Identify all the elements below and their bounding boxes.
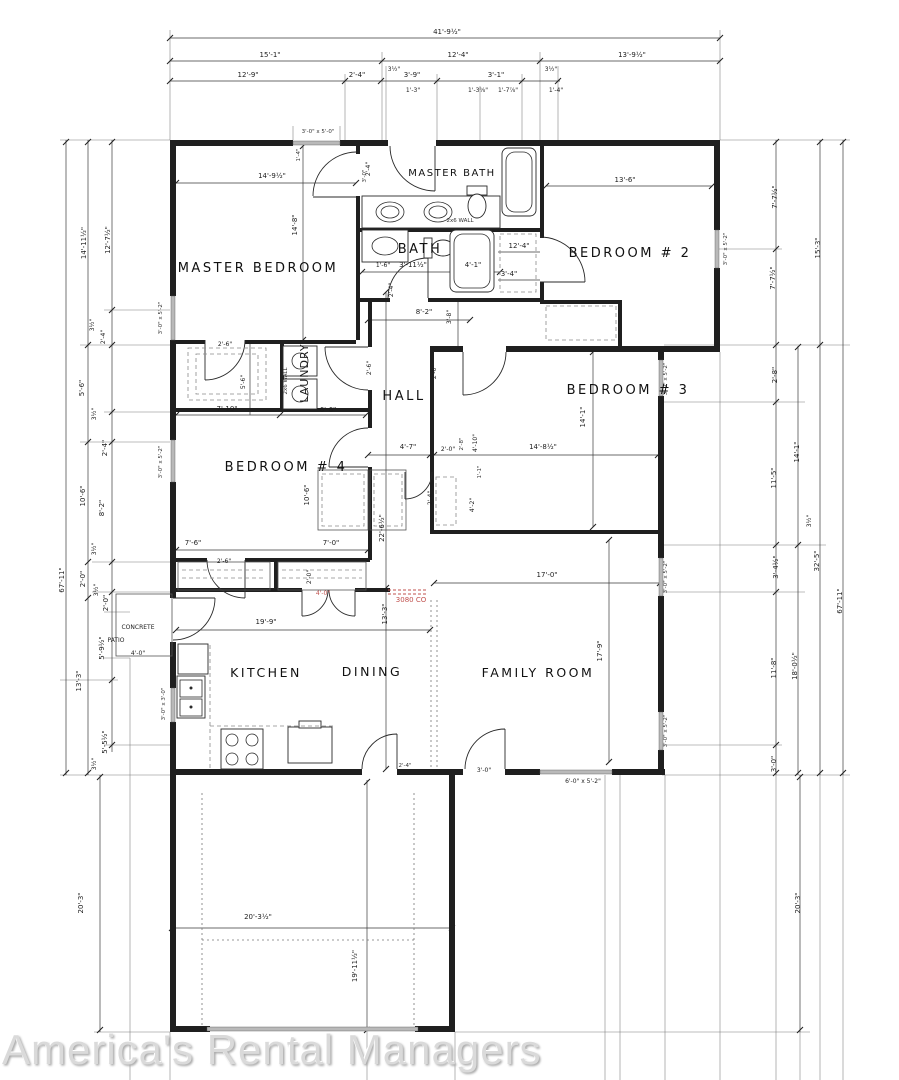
dim-label: 4'-1": [465, 261, 482, 269]
dim-label: 2'-8": [771, 367, 779, 384]
room-label-master-bath: MASTER BATH: [408, 168, 495, 179]
dim-label: 3'-0": [362, 169, 368, 182]
dim-label: 67'-11": [58, 567, 66, 592]
room-label-laundry: LAUNDRY: [298, 343, 311, 402]
dim-label: 14'-8": [291, 214, 299, 235]
window-size-label: 3'-0" x 5'-2": [663, 715, 669, 748]
closet-shelving: [178, 234, 616, 768]
patio-label: CONCRETE: [121, 624, 154, 631]
dim-label: 2'-4": [398, 763, 411, 769]
patio-label: PATIO: [107, 637, 124, 644]
dim-label: 22'-6½": [378, 514, 386, 542]
dim-label: 67'-11": [836, 588, 844, 613]
dim-label: 12'-4": [447, 51, 468, 59]
dim-label: 3½": [806, 515, 813, 528]
dim-label: 3½": [388, 66, 401, 73]
dim-label: 19'-11½": [351, 950, 359, 982]
dim-label: 12'-4": [508, 242, 529, 250]
dimension-text-top: 41'-9½" 15'-1" 12'-4" 13'-9½" 12'-9" 2'-…: [237, 28, 645, 135]
dim-label: 13'-3": [381, 603, 389, 624]
dim-label: 14'-1": [793, 441, 801, 462]
watermark: America's Rental Managers: [2, 1026, 899, 1074]
dim-label: 20'-3": [794, 892, 802, 913]
dim-label: 1'-1": [477, 465, 483, 478]
dim-label: 18'-0½": [791, 652, 799, 680]
dim-label: 2'-8": [459, 437, 465, 450]
dim-label: 5'-5½": [101, 730, 109, 753]
dim-label: 13'-3": [75, 670, 83, 691]
dim-label: 10'-6": [79, 485, 87, 506]
red-annotations: 4'-0" 3080 CO: [316, 590, 428, 604]
dim-label: 20'-3½": [244, 913, 272, 921]
dim-label: 5'-6": [78, 380, 86, 397]
dim-label: 14'-11½": [80, 227, 88, 259]
dim-label: 2'-6": [218, 341, 232, 348]
dim-label: 1'-3⅝": [468, 87, 488, 94]
dim-label: 7'-6": [185, 539, 202, 547]
window-size-label: 3'-0" x 5'-2": [723, 233, 729, 266]
dim-label: 1'-4": [296, 148, 302, 161]
room-label-dining: DINING: [342, 664, 402, 679]
dim-label: 41'-9½": [433, 28, 461, 36]
patio-dim: 4'-0": [131, 650, 145, 657]
room-label-bedroom-3: BEDROOM # 3: [567, 383, 690, 398]
dim-label: 14'-1": [579, 406, 587, 427]
dim-label: 2'-4": [100, 330, 107, 344]
dim-label: 13'-6": [614, 176, 635, 184]
wall-type-label: 2x6 WALL: [446, 218, 474, 224]
room-label-bedroom-4: BEDROOM # 4: [225, 460, 348, 475]
dim-label: 20'-3": [77, 892, 85, 913]
dim-label: 10'-6": [303, 484, 311, 505]
red-door-size: 4'-0": [316, 590, 330, 597]
dim-label: 2'-6": [366, 361, 373, 375]
window-size-label: 6'-0" x 5'-2": [565, 778, 601, 785]
window-size-label: 3'-0" x 5'-0": [302, 129, 335, 135]
dim-label: 1'-7⅞": [498, 87, 518, 94]
dim-label: 2'-4": [388, 283, 395, 297]
dim-label: 3'-0": [770, 756, 778, 773]
window-size-label: 3'-0" x 5'-2": [663, 561, 669, 594]
dim-label: 3'-4½": [772, 555, 780, 578]
dim-label: 3½": [89, 319, 96, 332]
dim-label: 2'-0": [102, 595, 110, 612]
dim-label: 19'-9": [255, 618, 276, 626]
dim-label: 2'-4": [101, 440, 109, 457]
dim-label: 3'-11½": [399, 261, 427, 269]
fixtures: [116, 148, 536, 769]
dim-label: 3½": [93, 584, 100, 597]
dimension-text-right: 7'-7½" 15'-3" 7'-7½" 2'-8" 14'-1" 11'-5"…: [663, 185, 844, 913]
dim-label: 15'-1": [259, 51, 280, 59]
floor-plan-drawing: 4'-0" 3080 CO 41'-9½" 15'-1" 12'-4" 13'-…: [0, 0, 899, 1080]
room-label-bedroom-2: BEDROOM # 2: [569, 246, 692, 261]
dim-label: 3½": [91, 408, 98, 421]
dim-label: 3'-1": [488, 71, 505, 79]
dim-label: 3'-0": [477, 767, 491, 774]
dim-label: 8'-2": [416, 308, 433, 316]
dim-label: 7'-7½": [771, 185, 779, 208]
dimension-text-left: 67'-11" 14'-11½" 12'-7½" 3½" 2'-4" 5'-6"…: [58, 226, 167, 913]
dim-label: 5'-6": [240, 375, 247, 389]
dim-label: 1'-4": [549, 87, 563, 94]
dim-label: 7'-0": [323, 539, 340, 547]
dim-label: 1'-3": [406, 87, 420, 94]
dim-label: 4'-10": [472, 434, 479, 452]
dim-label: 2'-4": [349, 71, 366, 79]
dim-label: 3½": [91, 758, 98, 771]
dim-label: 3'-9": [404, 71, 421, 79]
wall-type-label: 2x6 WALL: [283, 367, 289, 395]
dim-label: 12'-9": [237, 71, 258, 79]
room-labels: MASTER BEDROOM MASTER BATH BATH BEDROOM …: [178, 168, 692, 680]
window-size-label: 3'-0" x 3'-0": [161, 688, 167, 721]
dim-label: 3'-4": [501, 270, 518, 278]
dim-label: 32'-5": [813, 550, 821, 571]
window-size-label: 3'-0" x 5'-2": [158, 302, 164, 335]
garage-outline: [202, 793, 414, 1028]
dim-label: 4'-2": [469, 498, 476, 512]
dim-label: 2'-6": [217, 558, 231, 565]
dim-label: 3½": [545, 66, 558, 73]
dim-label: 7'-7½": [769, 266, 777, 289]
dim-label: 3½": [91, 543, 98, 556]
dim-label: 4'-7": [400, 443, 417, 451]
room-label-kitchen: KITCHEN: [230, 665, 302, 680]
room-label-bath: BATH: [398, 242, 443, 257]
dim-label: 12'-7½": [104, 226, 112, 254]
dishwasher: [288, 727, 332, 763]
room-label-hall: HALL: [382, 389, 425, 404]
dim-label: 5'-9½": [98, 636, 106, 659]
room-label-family-room: FAMILY ROOM: [482, 665, 595, 680]
refrigerator: [178, 644, 208, 674]
dim-label: 14'-9½": [258, 172, 286, 180]
dim-label: 8'-2": [98, 500, 106, 517]
dim-label: 11'-8": [770, 657, 778, 678]
dim-label: 13'-9½": [618, 51, 646, 59]
dim-label: 11'-5": [770, 467, 778, 488]
window-size-label: 3'-0" x 5'-2": [158, 446, 164, 479]
dim-label: 15'-3": [814, 237, 822, 258]
master-tub: [502, 148, 536, 216]
dim-label: 2'-0": [79, 571, 87, 588]
dim-label: 17'-9": [596, 640, 604, 661]
dim-label: 1'-6": [376, 262, 390, 269]
dim-label: 3'-8": [446, 310, 453, 324]
dim-label: 6'-6": [320, 406, 337, 414]
dim-label: 2'-6": [431, 365, 438, 379]
room-label-master-bedroom: MASTER BEDROOM: [178, 261, 339, 276]
dim-label: 7'-10": [216, 405, 237, 413]
dim-label: 14'-8½": [529, 443, 557, 451]
dim-label: 2'-0": [441, 446, 455, 453]
dim-label: 2'-0": [306, 570, 313, 584]
dim-label: 17'-0": [536, 571, 557, 579]
floorplan-page: 4'-0" 3080 CO 41'-9½" 15'-1" 12'-4" 13'-…: [0, 0, 899, 1080]
red-cased-opening: 3080 CO: [396, 596, 427, 604]
dim-label: 2'-4": [427, 491, 434, 505]
